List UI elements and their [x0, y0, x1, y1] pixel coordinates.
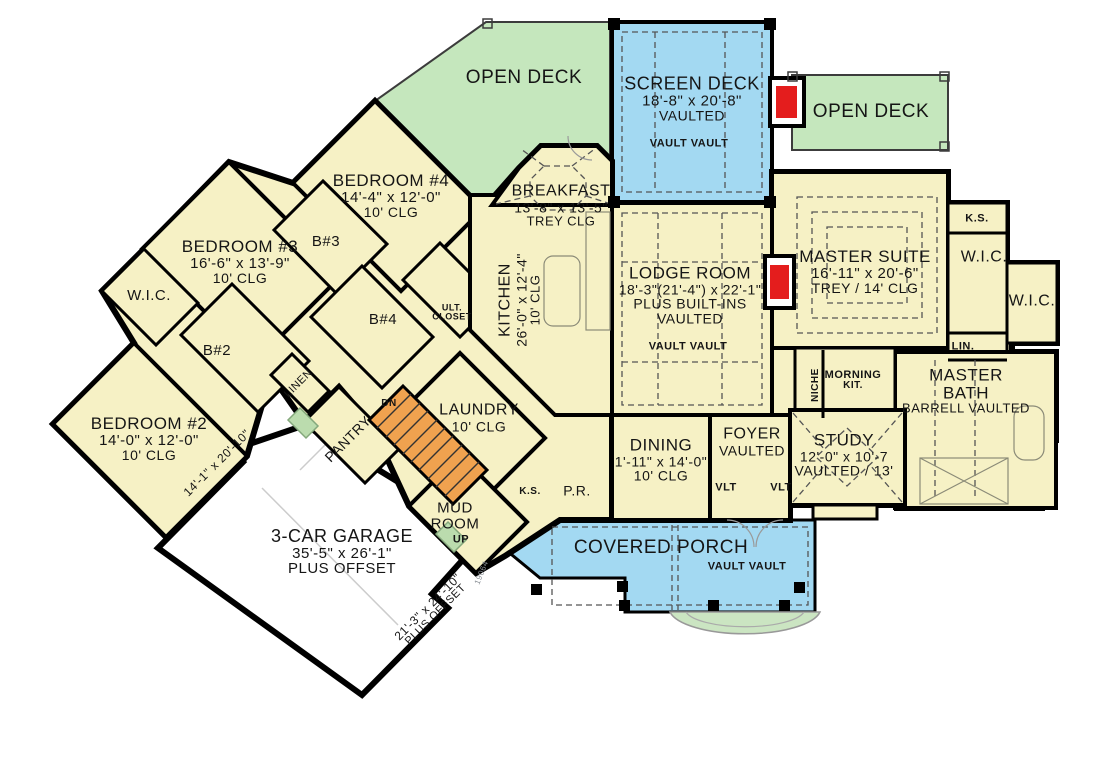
label-kitchen-text: 26'-0" x 12'-4" [514, 253, 529, 347]
label-dining-text: DINING [615, 437, 708, 455]
label-laundry: LAUNDRY10' CLG [439, 402, 519, 433]
label-ks-mud: K.S. [519, 487, 540, 497]
label-vlt-1: VLT [715, 482, 736, 493]
label-pr-text: P.R. [563, 484, 590, 499]
label-lodge-text: 18'-3"(21'-4") x 22'-1" [619, 282, 762, 297]
label-screen-deck-text: 18'-8" x 20'-8" [624, 93, 760, 109]
label-mud-room: MUDROOM [431, 500, 480, 531]
label-garage-text: 3-CAR GARAGE [271, 527, 413, 546]
label-morning-kit: MORNINGKIT. [825, 370, 882, 392]
label-b3-text: B#3 [312, 234, 340, 250]
label-wic-right-1: W.I.C. [961, 250, 1008, 267]
label-wic-left-text: W.I.C. [127, 288, 171, 304]
label-laundry-text: 10' CLG [439, 419, 519, 434]
label-b4: B#4 [369, 312, 397, 328]
label-laundry-text: LAUNDRY [439, 402, 519, 419]
label-covered-porch: COVERED PORCH [574, 538, 748, 558]
label-up: UP [453, 534, 469, 545]
label-wic-left: W.I.C. [127, 288, 171, 304]
label-master-suite: MASTER SUITE16'-11" x 20'-6"TREY / 14' C… [799, 248, 931, 296]
label-bedroom2: BEDROOM #214'-0" x 12'-0"10' CLG [91, 415, 207, 463]
label-covered-porch-text: COVERED PORCH [574, 538, 748, 558]
label-porch-vault: VAULT VAULT [708, 561, 787, 572]
front-step-arc [670, 612, 820, 634]
label-dining: DINING1'-11" x 14'-0"10' CLG [615, 437, 708, 484]
label-lodge-vault: VAULT VAULT [649, 341, 728, 352]
label-bedroom3: BEDROOM #316'-6" x 13'-9"10' CLG [182, 238, 298, 286]
label-dining-text: 10' CLG [615, 469, 708, 484]
screen-deck-fireplace [776, 86, 797, 118]
label-niche: NICHE [811, 368, 821, 402]
label-breakfast-text: 13'-8" x 13'-5" [512, 200, 611, 215]
label-master-suite-text: 16'-11" x 20'-6" [799, 266, 931, 282]
label-foyer-text: FOYER [719, 426, 785, 443]
label-ks-right-text: K.S. [965, 213, 988, 224]
label-kitchen-text: 10' CLG [529, 253, 543, 347]
label-master-bath-text: BARRELL VAULTED [902, 402, 1030, 416]
label-lodge-vault-text: VAULT VAULT [649, 341, 728, 352]
label-pr: P.R. [563, 484, 590, 499]
label-lodge-text: VAULTED [619, 311, 762, 326]
label-open-deck-left-text: OPEN DECK [466, 68, 582, 88]
label-lin-text: LIN. [952, 341, 975, 352]
label-ks-mud-text: K.S. [519, 487, 540, 497]
label-bedroom3-text: BEDROOM #3 [182, 238, 298, 256]
label-dn: DN [381, 399, 396, 409]
label-screen-deck-text: VAULTED [624, 109, 760, 124]
label-mud-room-text: MUD [431, 500, 480, 516]
label-foyer: FOYERVAULTED [719, 426, 785, 457]
label-open-deck-left: OPEN DECK [466, 68, 582, 88]
label-bedroom3-text: 16'-6" x 13'-9" [182, 256, 298, 272]
label-breakfast-text: BREAKFAST [512, 184, 611, 201]
label-vlt-2: VLT [770, 482, 791, 493]
label-dining-text: 1'-11" x 14'-0" [615, 454, 708, 469]
floor-plan: OPEN DECKSCREEN DECK18'-8" x 20'-8"VAULT… [0, 0, 1100, 770]
label-mud-room-text: ROOM [431, 516, 480, 532]
label-master-bath-text: MASTER [902, 367, 1030, 385]
label-bedroom2-text: BEDROOM #2 [91, 415, 207, 433]
label-b4-text: B#4 [369, 312, 397, 328]
label-screen-deck-vault-text: VAULT VAULT [650, 138, 729, 149]
label-study-text: STUDY [795, 432, 894, 450]
label-master-suite-text: MASTER SUITE [799, 248, 931, 266]
label-lodge-text: PLUS BUILT-INS [619, 297, 762, 312]
label-bedroom3-text: 10' CLG [182, 271, 298, 286]
label-kitchen: KITCHEN26'-0" x 12'-4"10' CLG [498, 253, 543, 347]
label-breakfast-text: TREY CLG [512, 215, 611, 229]
label-bedroom2-text: 14'-0" x 12'-0" [91, 433, 207, 449]
label-bedroom4-text: 14'-4" x 12'-0" [333, 190, 449, 206]
label-study-text: VAULTED / 13' [795, 464, 894, 479]
label-garage: 3-CAR GARAGE35'-5" x 26'-1"PLUS OFFSET [271, 527, 413, 577]
label-bedroom4: BEDROOM #414'-4" x 12'-0"10' CLG [333, 172, 449, 220]
label-vlt-1-text: VLT [715, 482, 736, 493]
label-morning-kit-text: KIT. [825, 382, 882, 392]
label-lodge: LODGE ROOM18'-3"(21'-4") x 22'-1"PLUS BU… [619, 264, 762, 325]
label-b3: B#3 [312, 234, 340, 250]
label-screen-deck-vault: VAULT VAULT [650, 138, 729, 149]
label-bedroom4-text: BEDROOM #4 [333, 172, 449, 190]
label-garage-text: 35'-5" x 26'-1" [271, 546, 413, 562]
label-lodge-text: LODGE ROOM [619, 264, 762, 282]
label-b2: B#2 [203, 343, 231, 359]
label-foyer-text: VAULTED [719, 443, 785, 458]
label-master-bath: MASTERBATHBARRELL VAULTED [902, 367, 1030, 416]
label-bedroom2-text: 10' CLG [91, 448, 207, 463]
label-ult-closet-text: CLOSET [432, 313, 472, 322]
label-niche-text: NICHE [811, 368, 821, 402]
label-breakfast: BREAKFAST13'-8" x 13'-5"TREY CLG [512, 184, 611, 229]
label-kitchen-text: KITCHEN [498, 253, 515, 347]
label-screen-deck-text: SCREEN DECK [624, 75, 760, 94]
label-b2-text: B#2 [203, 343, 231, 359]
label-vlt-2-text: VLT [770, 482, 791, 493]
label-ult-closet: ULT.CLOSET [432, 304, 472, 323]
label-master-bath-text: BATH [902, 384, 1030, 402]
label-study: STUDY12'-0" x 10'-7VAULTED / 13' [795, 432, 894, 479]
label-screen-deck: SCREEN DECK18'-8" x 20'-8"VAULTED [624, 75, 760, 124]
label-up-text: UP [453, 534, 469, 545]
label-lin: LIN. [952, 341, 975, 352]
label-bedroom4-text: 10' CLG [333, 205, 449, 220]
label-study-text: 12'-0" x 10'-7 [795, 449, 894, 464]
label-wic-right-2: W.I.C. [1009, 294, 1056, 311]
label-open-deck-right: OPEN DECK [813, 102, 929, 122]
label-master-suite-text: TREY / 14' CLG [799, 281, 931, 296]
lodge-fireplace [770, 265, 789, 299]
label-porch-vault-text: VAULT VAULT [708, 561, 787, 572]
label-garage-text: PLUS OFFSET [271, 561, 413, 577]
label-wic-right-2-text: W.I.C. [1009, 294, 1056, 311]
label-dn-text: DN [381, 399, 396, 409]
label-open-deck-right-text: OPEN DECK [813, 102, 929, 122]
label-ks-right: K.S. [965, 213, 988, 224]
study-bay [813, 505, 877, 519]
label-wic-right-1-text: W.I.C. [961, 250, 1008, 267]
